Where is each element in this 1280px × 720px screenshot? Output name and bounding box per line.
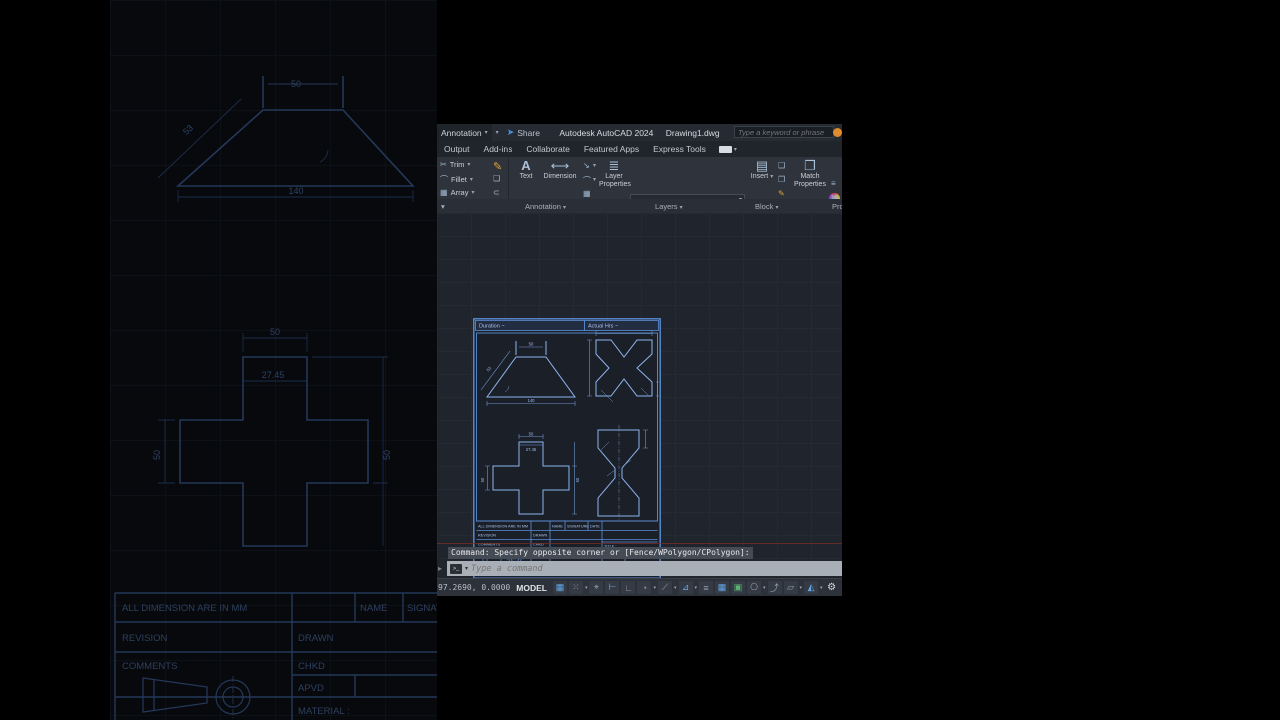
svg-text:Actual Hrs ~: Actual Hrs ~ [588,324,618,330]
chevron-down-icon: ▾ [470,176,473,183]
chevron-down-icon[interactable]: ▾ [593,162,596,169]
workspace-dropdown[interactable]: Annotation ▾ [437,124,492,141]
chevron-down-icon[interactable]: ▾ [763,585,766,591]
coordinates-readout: 97.2690, 0.0000 [438,583,510,592]
svg-text:REVISION: REVISION [478,534,496,538]
document-name: Drawing1.dwg [666,128,720,138]
grid-icon[interactable]: ▦ [553,581,567,594]
tab-add-ins[interactable]: Add-ins [477,141,520,157]
svg-text:ALL DIMENSION ARE IN MM: ALL DIMENSION ARE IN MM [478,525,528,529]
block-panel-label[interactable]: Block ▾ [755,202,778,211]
lineweight-icon[interactable]: ≡ [699,581,713,594]
fillet-button[interactable]: ⌒ Fillet ▾ [440,174,473,185]
svg-text:MATERIAL :: MATERIAL : [298,706,350,717]
svg-text:50: 50 [270,327,280,337]
table-icon[interactable]: ▦ [583,189,591,198]
revision-cloud-icon[interactable]: ⌒ [583,175,591,186]
dimension-icon: ⟷ [540,159,580,173]
svg-text:ALL DIMENSION ARE IN MM: ALL DIMENSION ARE IN MM [122,603,247,614]
svg-text:50: 50 [529,432,534,437]
chevron-down-icon[interactable]: ▾ [820,585,823,591]
ribbon-pill-icon [719,146,732,153]
bg-cross-labels: 50 27.45 50 50 [152,327,392,460]
bg-trapezoid-labels: 50 53 140 [181,79,304,196]
dynamic-input-icon[interactable]: ⌖ [589,581,603,594]
chevron-down-icon[interactable]: ▾ [593,176,596,183]
panel-label-row: ▾ Annotation ▾ Layers ▾ Block ▾ Pro [437,199,842,213]
isodraft-icon[interactable]: ◔ [637,581,651,594]
command-input[interactable] [471,564,839,574]
chevron-down-icon[interactable]: ▾ [674,585,677,591]
svg-text:27.45: 27.45 [262,370,285,380]
command-prompt-icon: >_ [450,564,462,574]
video-frame: 50 53 140 50 27.45 50 50 [0,0,1280,720]
chevron-down-icon[interactable]: ▾ [800,585,803,591]
match-properties-icon: ❐ [792,159,828,173]
command-input-bar[interactable]: >_ ▾ [447,561,842,576]
chevron-down-icon[interactable]: ▾ [465,565,468,572]
dynamic-ucs-icon[interactable]: ⤴ [768,581,782,594]
ribbon-display-toggle[interactable]: ▾ [719,146,737,153]
svg-text:REVISION: REVISION [122,633,168,644]
model-space-button[interactable]: MODEL [512,583,551,593]
isolate-objects-icon[interactable]: ⚙ [825,581,839,594]
chevron-down-icon: ▾ [485,129,488,136]
selection-cycling-icon[interactable]: ▣ [731,581,745,594]
status-bar: 97.2690, 0.0000 MODEL ▦ ⁙ ▾ ⌖ ⊢ ∟ ◔ ▾ ⟋ … [437,578,842,596]
insert-button[interactable]: ▤ Insert ▾ [748,159,776,182]
snap-icon[interactable]: ⁙ [569,581,583,594]
array-button[interactable]: ▦ Array ▾ [440,188,475,197]
transparency-icon[interactable]: ▦ [715,581,729,594]
lineweight-list-icon[interactable]: ≡ [831,179,836,188]
text-button[interactable]: A Text [513,159,539,181]
layer-properties-button[interactable]: ≣ Layer Properties [599,159,629,188]
edit-block-icon[interactable]: ❐ [778,175,785,184]
background-drawing: 50 53 140 50 27.45 50 50 [110,0,437,720]
bg-title-block-labels: ALL DIMENSION ARE IN MM NAME SIGNATURE R… [122,603,437,717]
svg-text:53: 53 [181,123,195,137]
svg-text:DRAWN: DRAWN [533,534,547,538]
svg-text:27.45: 27.45 [526,447,537,452]
svg-text:APVD: APVD [298,683,324,694]
box-3d-icon[interactable]: ❑ [493,174,500,183]
tab-express-tools[interactable]: Express Tools [646,141,713,157]
chevron-down-icon[interactable]: ▾ [653,585,656,591]
chevron-down-icon: ▾ [467,161,470,168]
layers-stack-icon: ≣ [599,159,629,173]
svg-text:SIGNATURE: SIGNATURE [407,603,437,614]
chevron-down-icon[interactable]: ▾ [585,585,588,591]
chevron-down-icon: ▾ [770,174,773,180]
svg-text:50: 50 [152,450,162,460]
text-icon: A [513,159,539,173]
help-search-field[interactable] [734,126,834,138]
drawing-canvas[interactable]: Duration ~ Actual Hrs ~ 50 53 140 [437,213,842,560]
workspace-label: Annotation [441,128,482,138]
tab-output[interactable]: Output [437,141,477,157]
bg-cross [180,357,368,546]
tab-collaborate[interactable]: Collaborate [519,141,576,157]
polar-tracking-icon[interactable]: ∟ [621,581,635,594]
leader-icon[interactable]: ↘ [583,161,590,170]
chevron-down-icon: ▾ [471,189,474,196]
search-input[interactable] [738,128,830,137]
svg-text:DATE: DATE [590,525,600,529]
svg-text:COMMENTS: COMMENTS [122,661,177,672]
canvas-divider-line [437,543,842,544]
account-icon[interactable] [833,128,842,137]
draw-pencil-icon[interactable]: ✎ [493,160,502,173]
svg-text:50: 50 [575,477,580,482]
bg-trapezoid [178,76,413,186]
stretch-icon[interactable]: ⊂ [493,188,500,197]
command-expand-arrow[interactable]: ▸ [438,564,442,573]
match-properties-button[interactable]: ❐ Match Properties [792,159,828,188]
modify-panel-expander[interactable]: ▾ [441,202,445,211]
osnap-tracking-icon[interactable]: ⟋ [658,581,672,594]
sheet-header: Duration ~ Actual Hrs ~ [476,321,659,331]
svg-text:NAME: NAME [552,525,563,529]
ribbon-tab-row: Output Add-ins Collaborate Featured Apps… [437,141,842,157]
trim-button[interactable]: ✂ Trim ▾ [440,160,470,169]
tab-featured-apps[interactable]: Featured Apps [577,141,646,157]
bg-cross-dims [158,333,388,546]
autocad-window: Annotation ▾ ▾ ➤ Share Autodesk AutoCAD … [437,124,842,596]
ortho-icon[interactable]: ⊢ [605,581,619,594]
insert-block-icon: ▤ [748,159,776,173]
block-attr-icon[interactable]: ✎ [778,189,785,198]
app-title: Autodesk AutoCAD 2024 [559,128,653,138]
annotation-scale-icon[interactable]: ▱ [784,581,798,594]
svg-text:NAME: NAME [360,603,387,614]
dimension-button[interactable]: ⟷ Dimension [540,159,580,181]
background-cad-sketch: 50 53 140 50 27.45 50 50 [110,0,437,720]
fillet-icon: ⌒ [440,174,448,185]
drawing-sheet: Duration ~ Actual Hrs ~ 50 53 140 [473,318,661,579]
svg-text:SIGNATURE: SIGNATURE [567,525,589,529]
customization-icon[interactable]: ✦ [841,581,842,594]
svg-text:50: 50 [291,79,301,89]
osnap-3d-icon[interactable]: ⎔ [747,581,761,594]
annotation-panel-label[interactable]: Annotation ▾ [525,202,566,211]
svg-text:50: 50 [529,342,534,347]
array-icon: ▦ [440,188,448,197]
command-history-line: Command: Specify opposite corner or [Fen… [448,547,753,559]
title-bar: Annotation ▾ ▾ ➤ Share Autodesk AutoCAD … [437,124,842,141]
svg-text:140: 140 [288,186,303,196]
svg-text:Duration ~: Duration ~ [479,324,505,330]
quick-access-caret-icon[interactable]: ▾ [496,129,499,136]
trim-icon: ✂ [440,160,447,169]
svg-text:CHKD: CHKD [298,661,325,672]
properties-panel-label[interactable]: Pro [832,202,842,211]
layers-panel-label[interactable]: Layers ▾ [655,202,683,211]
chevron-down-icon: ▾ [734,146,737,153]
svg-text:50: 50 [382,450,392,460]
svg-text:50: 50 [480,477,485,482]
annotation-visibility-icon[interactable]: ◭ [804,581,818,594]
share-icon: ➤ [507,127,515,138]
svg-text:DRAWN: DRAWN [298,633,334,644]
object-snap-icon[interactable]: ⊿ [679,581,693,594]
share-label: Share [517,128,540,138]
create-block-icon[interactable]: ❑ [778,161,785,170]
svg-text:140: 140 [528,398,536,403]
share-button[interactable]: ➤ Share [507,127,540,138]
chevron-down-icon[interactable]: ▾ [695,585,698,591]
